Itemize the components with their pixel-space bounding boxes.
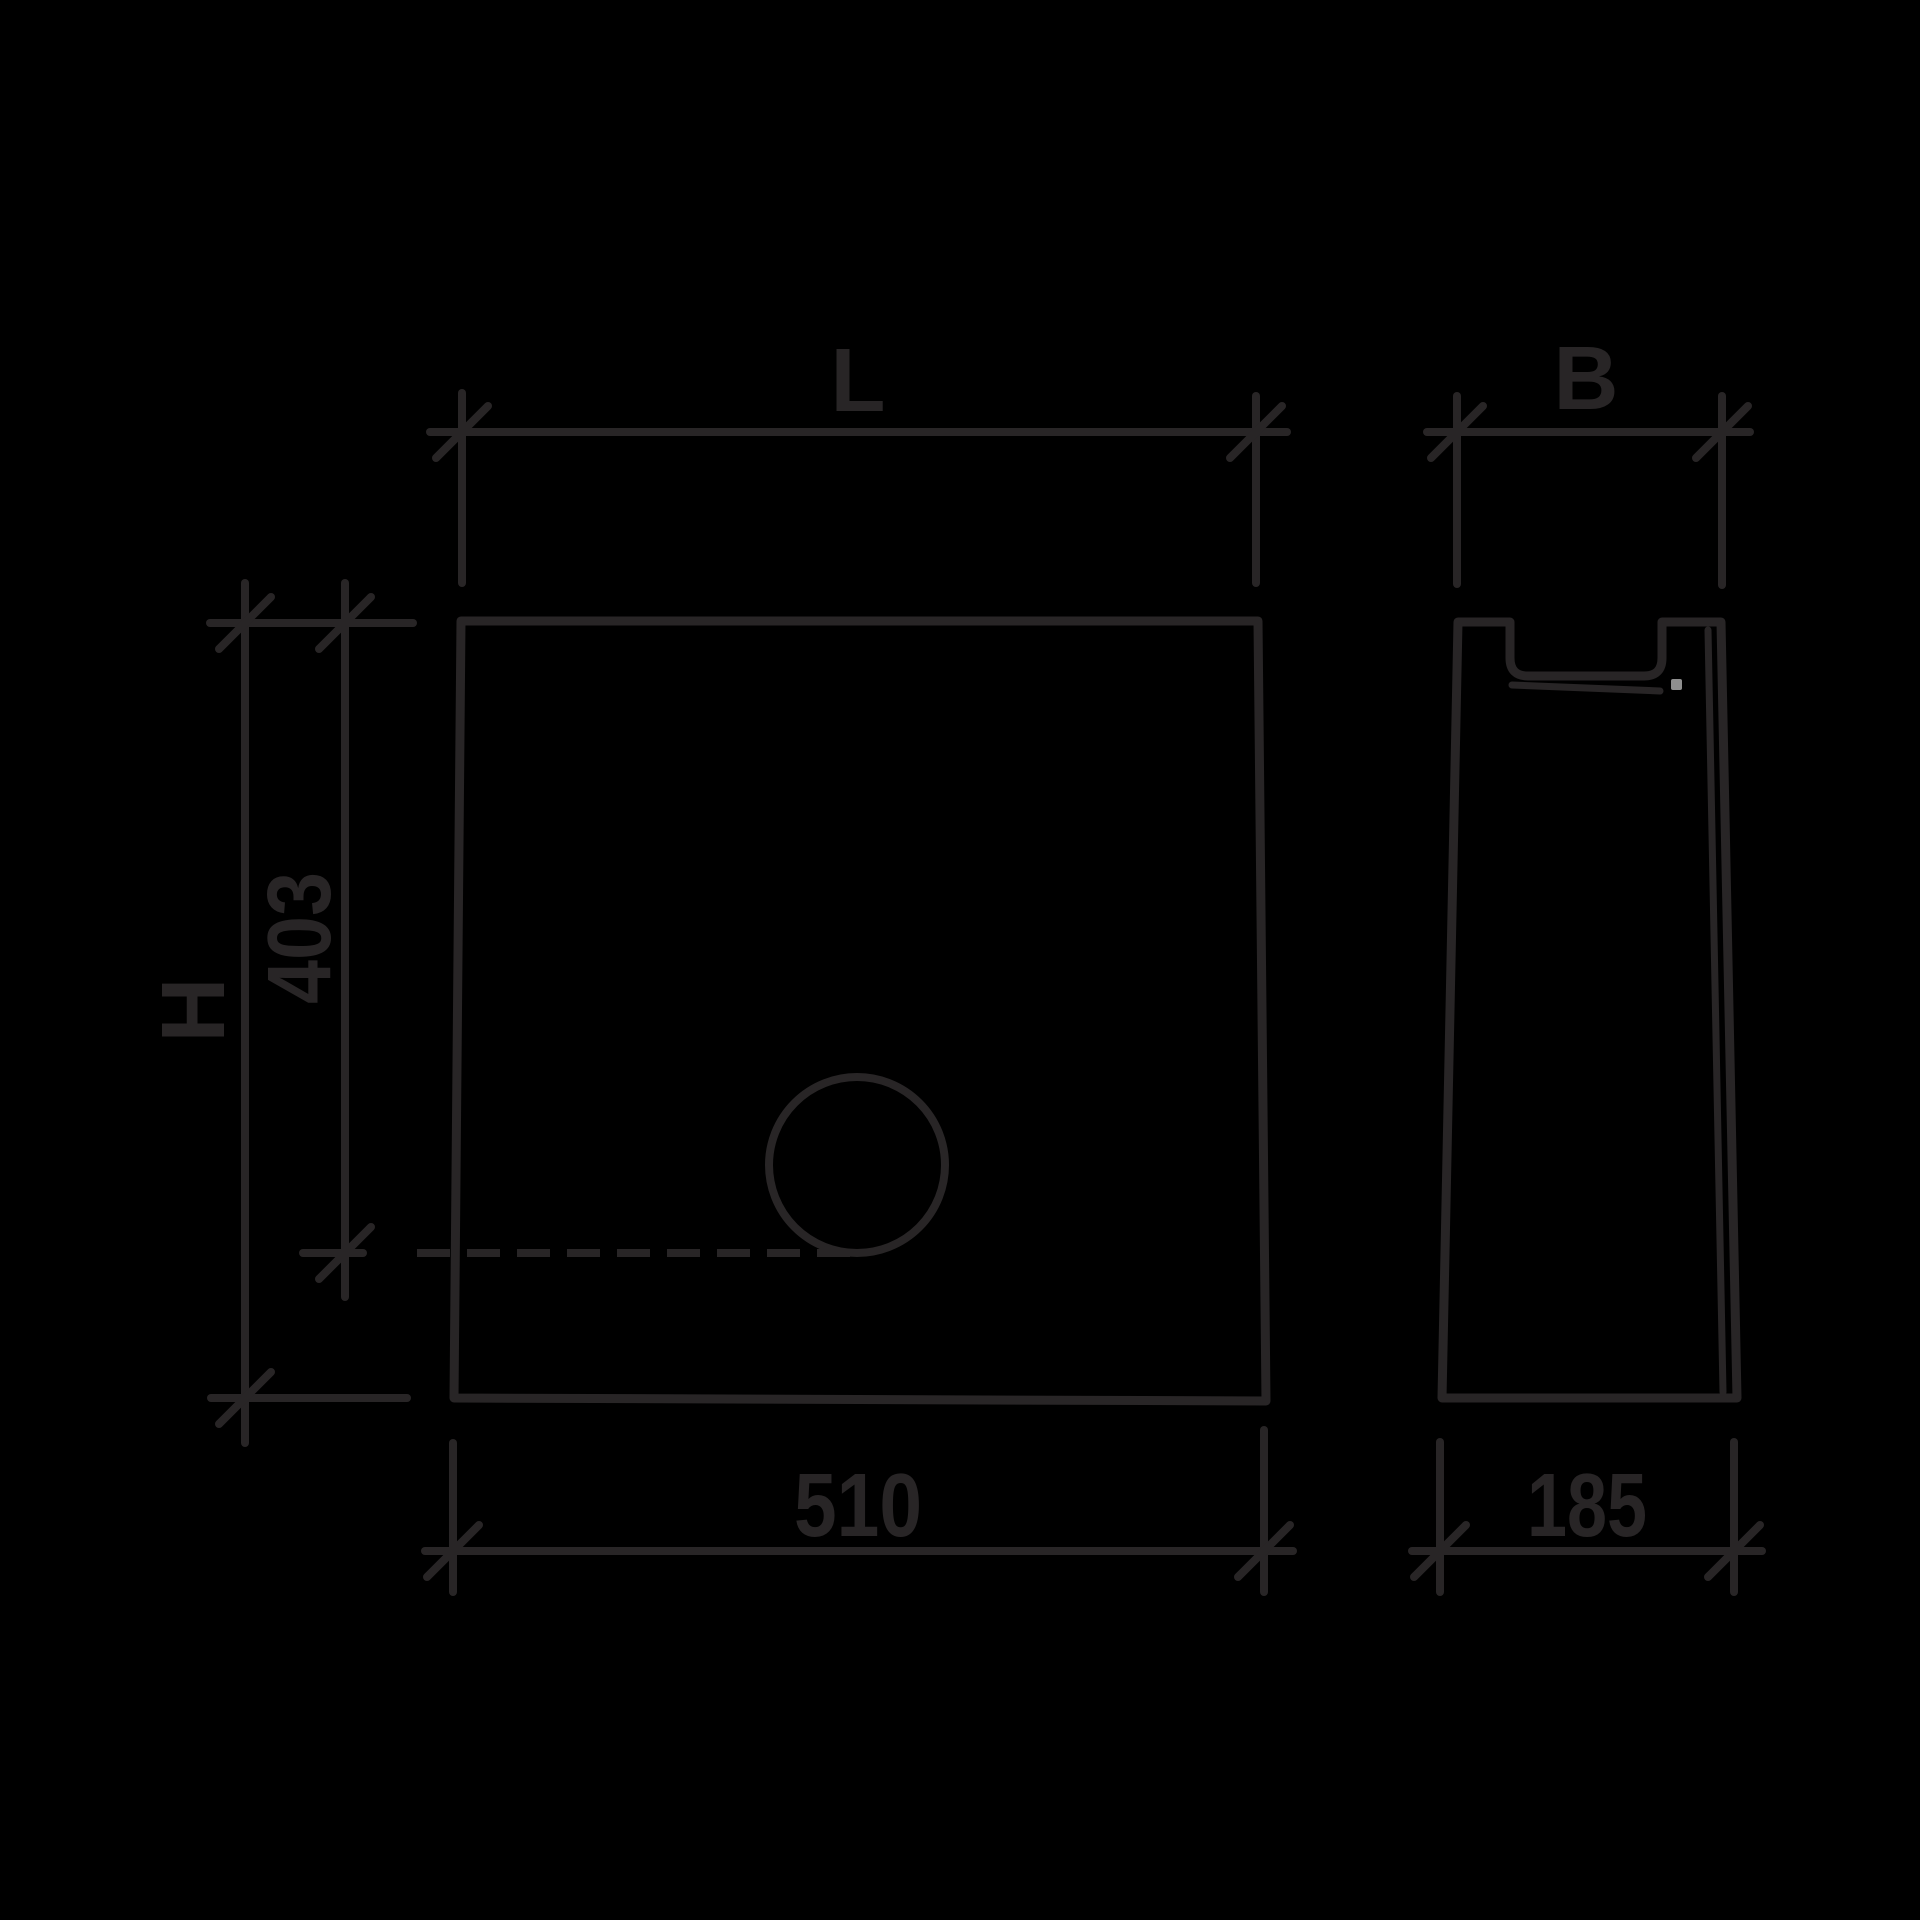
label-185: 185: [1527, 1456, 1647, 1556]
drawing-canvas: L B H 403 510 185: [0, 0, 1920, 1920]
artifact-dot: [1671, 679, 1682, 690]
label-403: 403: [250, 872, 350, 1004]
label-B: B: [1554, 329, 1619, 429]
label-L: L: [831, 331, 886, 431]
technical-dimension-drawing: L B H 403 510 185: [0, 0, 1920, 1920]
label-510: 510: [794, 1456, 922, 1556]
label-H: H: [144, 978, 244, 1043]
